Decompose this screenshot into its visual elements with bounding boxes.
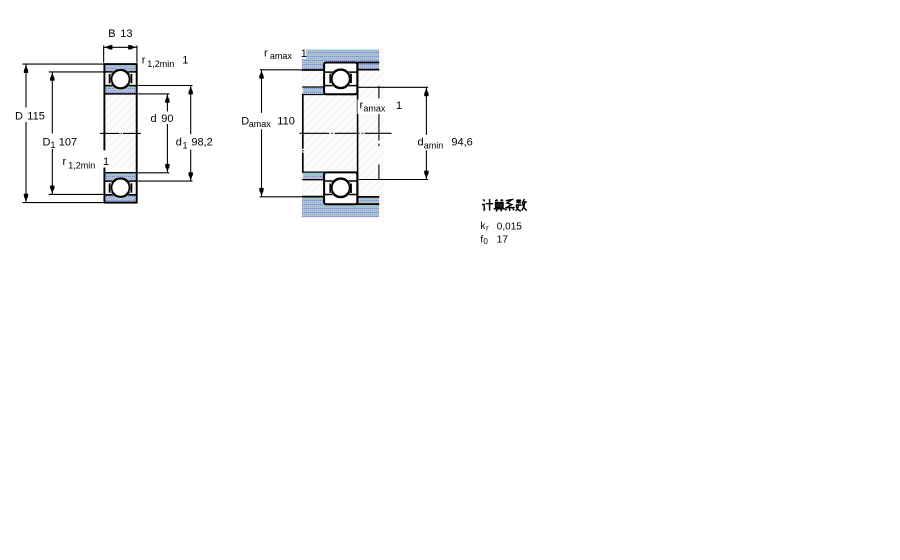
svg-text:107: 107 xyxy=(59,136,77,148)
svg-text:r: r xyxy=(142,55,146,67)
svg-text:1: 1 xyxy=(103,156,109,168)
svg-text:d: d xyxy=(151,113,157,125)
svg-text:D: D xyxy=(15,110,23,122)
svg-text:r: r xyxy=(63,156,67,168)
svg-text:1: 1 xyxy=(51,140,56,150)
svg-text:0: 0 xyxy=(483,237,488,246)
svg-text:d: d xyxy=(418,137,424,149)
svg-text:amax: amax xyxy=(363,104,386,114)
svg-text:0,015: 0,015 xyxy=(497,221,522,232)
svg-text:r: r xyxy=(486,224,489,233)
svg-text:110: 110 xyxy=(277,115,295,127)
svg-text:17: 17 xyxy=(497,235,509,246)
svg-text:115: 115 xyxy=(27,110,45,122)
svg-text:94,6: 94,6 xyxy=(451,137,472,149)
svg-text:1: 1 xyxy=(301,48,307,60)
svg-text:1: 1 xyxy=(182,55,188,67)
svg-text:1,2min: 1,2min xyxy=(68,160,95,170)
svg-text:90: 90 xyxy=(161,113,173,125)
svg-text:D: D xyxy=(43,136,51,148)
svg-text:r: r xyxy=(264,48,268,60)
svg-text:1: 1 xyxy=(183,140,188,150)
svg-text:amax: amax xyxy=(270,51,293,61)
svg-text:98,2: 98,2 xyxy=(191,137,212,149)
svg-text:d: d xyxy=(176,137,182,149)
svg-text:13: 13 xyxy=(120,28,132,40)
svg-text:1,2min: 1,2min xyxy=(147,59,174,69)
svg-text:amin: amin xyxy=(424,140,444,150)
svg-text:1: 1 xyxy=(396,100,402,112)
svg-text:B: B xyxy=(108,28,115,40)
svg-text:amax: amax xyxy=(249,119,272,129)
